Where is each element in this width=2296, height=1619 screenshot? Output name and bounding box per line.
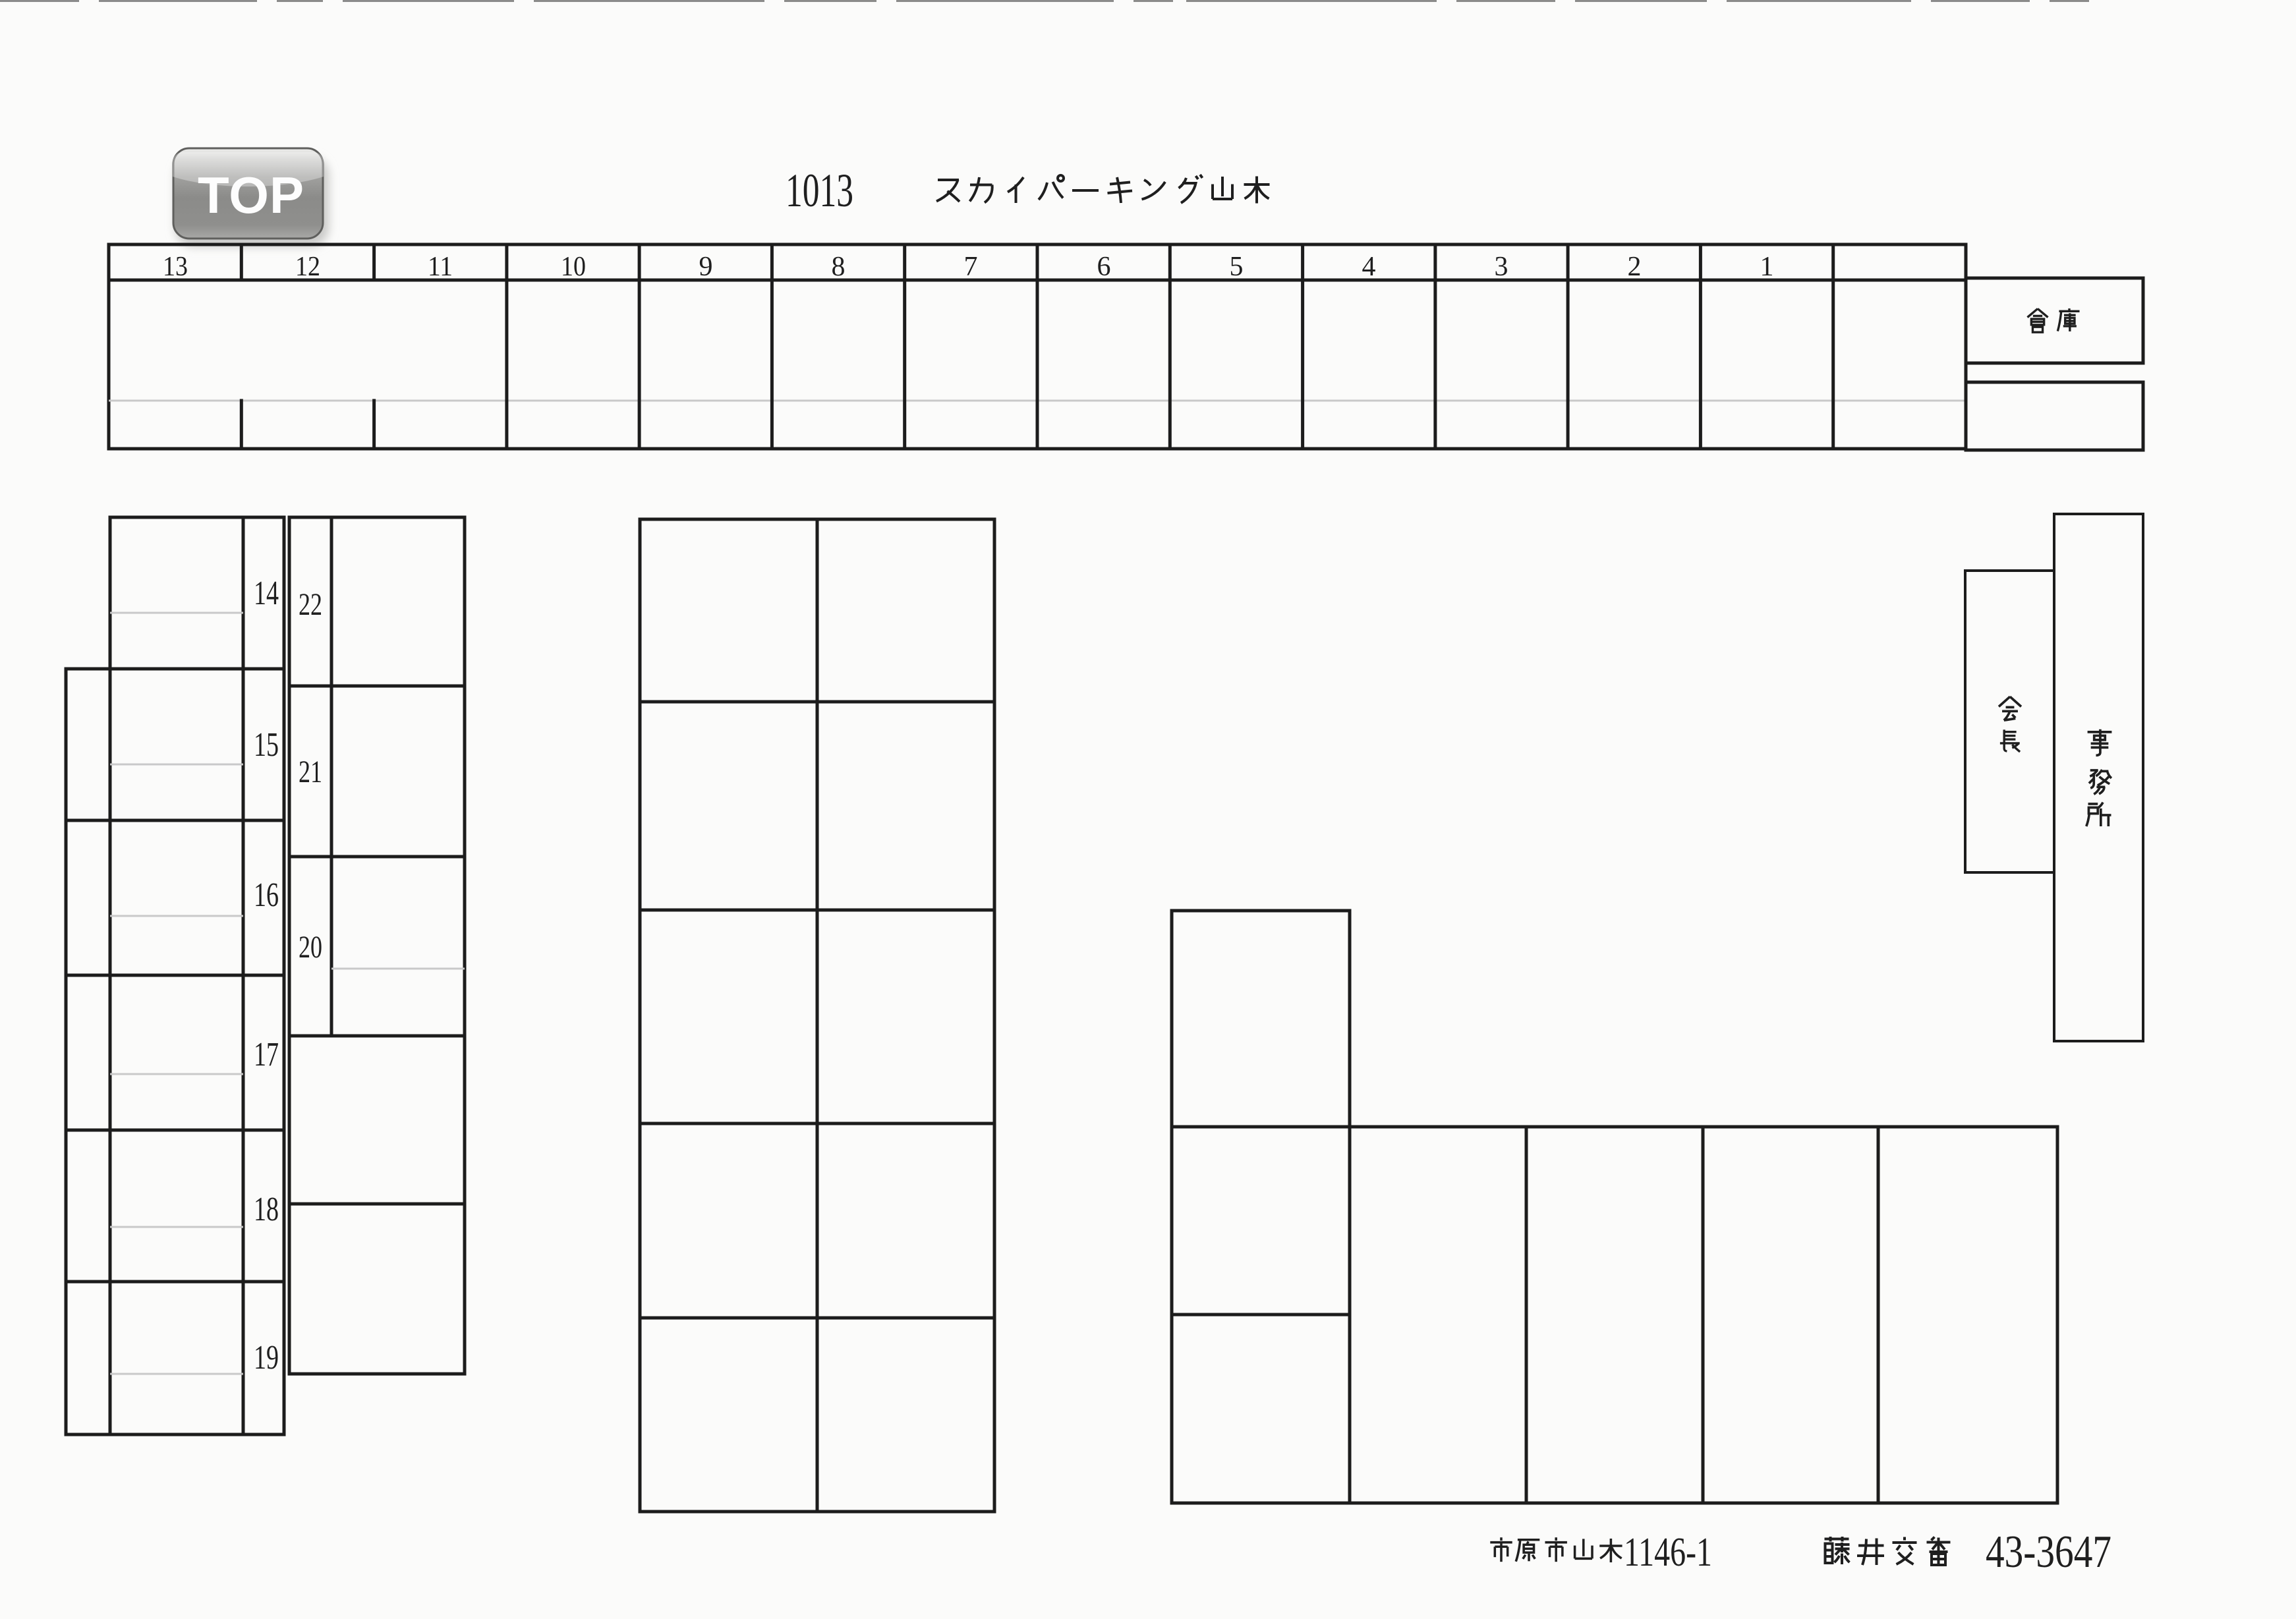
svg-text:1: 1	[1760, 252, 1774, 282]
svg-text:4: 4	[1362, 252, 1376, 282]
svg-text:10: 10	[561, 252, 586, 282]
svg-text:8: 8	[832, 252, 846, 282]
svg-text:12: 12	[295, 252, 320, 282]
svg-text:9: 9	[699, 252, 713, 282]
svg-text:21: 21	[299, 754, 322, 789]
svg-text:1146-1: 1146-1	[1624, 1530, 1712, 1575]
svg-text:3: 3	[1495, 252, 1508, 282]
svg-text:TOP: TOP	[198, 166, 304, 224]
svg-text:19: 19	[254, 1339, 279, 1377]
svg-text:14: 14	[254, 575, 279, 612]
svg-text:20: 20	[299, 930, 322, 965]
svg-text:2: 2	[1628, 252, 1642, 282]
svg-text:22: 22	[299, 587, 322, 622]
svg-text:15: 15	[254, 726, 279, 764]
svg-text:13: 13	[163, 252, 188, 282]
svg-text:16: 16	[254, 876, 279, 914]
svg-text:43-3647: 43-3647	[1986, 1527, 2111, 1577]
svg-text:17: 17	[254, 1036, 279, 1073]
svg-text:5: 5	[1230, 252, 1244, 282]
svg-text:1013: 1013	[786, 164, 853, 217]
svg-text:7: 7	[964, 252, 978, 282]
svg-text:11: 11	[428, 252, 453, 282]
svg-text:18: 18	[254, 1191, 279, 1228]
svg-text:6: 6	[1097, 252, 1111, 282]
